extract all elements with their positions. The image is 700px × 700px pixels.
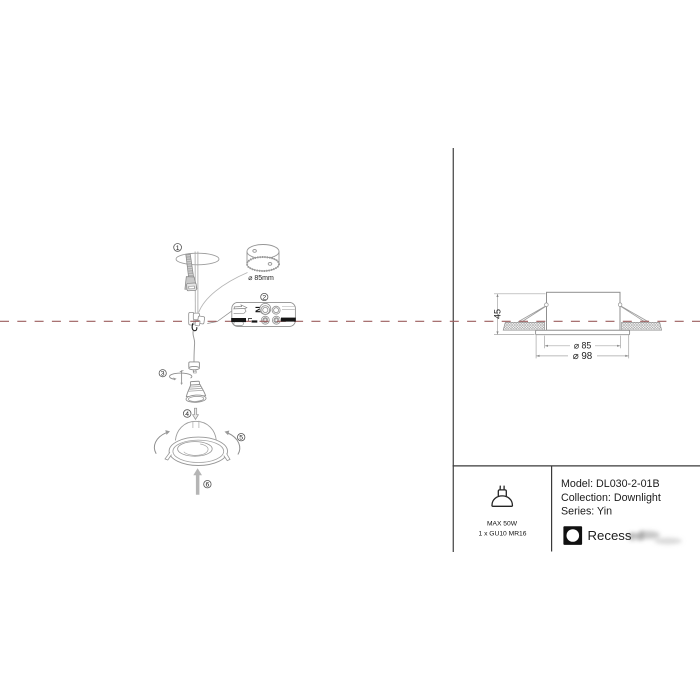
svg-text:Series: Yin: Series: Yin <box>561 506 612 518</box>
svg-text:1 x GU10 MR16: 1 x GU10 MR16 <box>479 531 527 538</box>
svg-text:Collection: Downlight: Collection: Downlight <box>561 492 661 504</box>
svg-text:3: 3 <box>161 371 165 378</box>
svg-text:MAX 50W: MAX 50W <box>487 521 518 528</box>
svg-text:2: 2 <box>262 294 266 301</box>
svg-text:45: 45 <box>492 309 502 319</box>
svg-text:⌀ 85: ⌀ 85 <box>574 341 592 351</box>
svg-text:1: 1 <box>176 245 180 252</box>
svg-text:⌀ 98: ⌀ 98 <box>573 351 593 362</box>
svg-text:⌀ 85mm: ⌀ 85mm <box>248 275 274 282</box>
svg-text:4: 4 <box>185 411 189 418</box>
svg-text:Model: DL030-2-01B: Model: DL030-2-01B <box>561 478 660 490</box>
svg-text:Recess: Recess <box>588 528 632 543</box>
svg-text:5: 5 <box>239 435 243 442</box>
svg-text:6: 6 <box>206 482 210 489</box>
